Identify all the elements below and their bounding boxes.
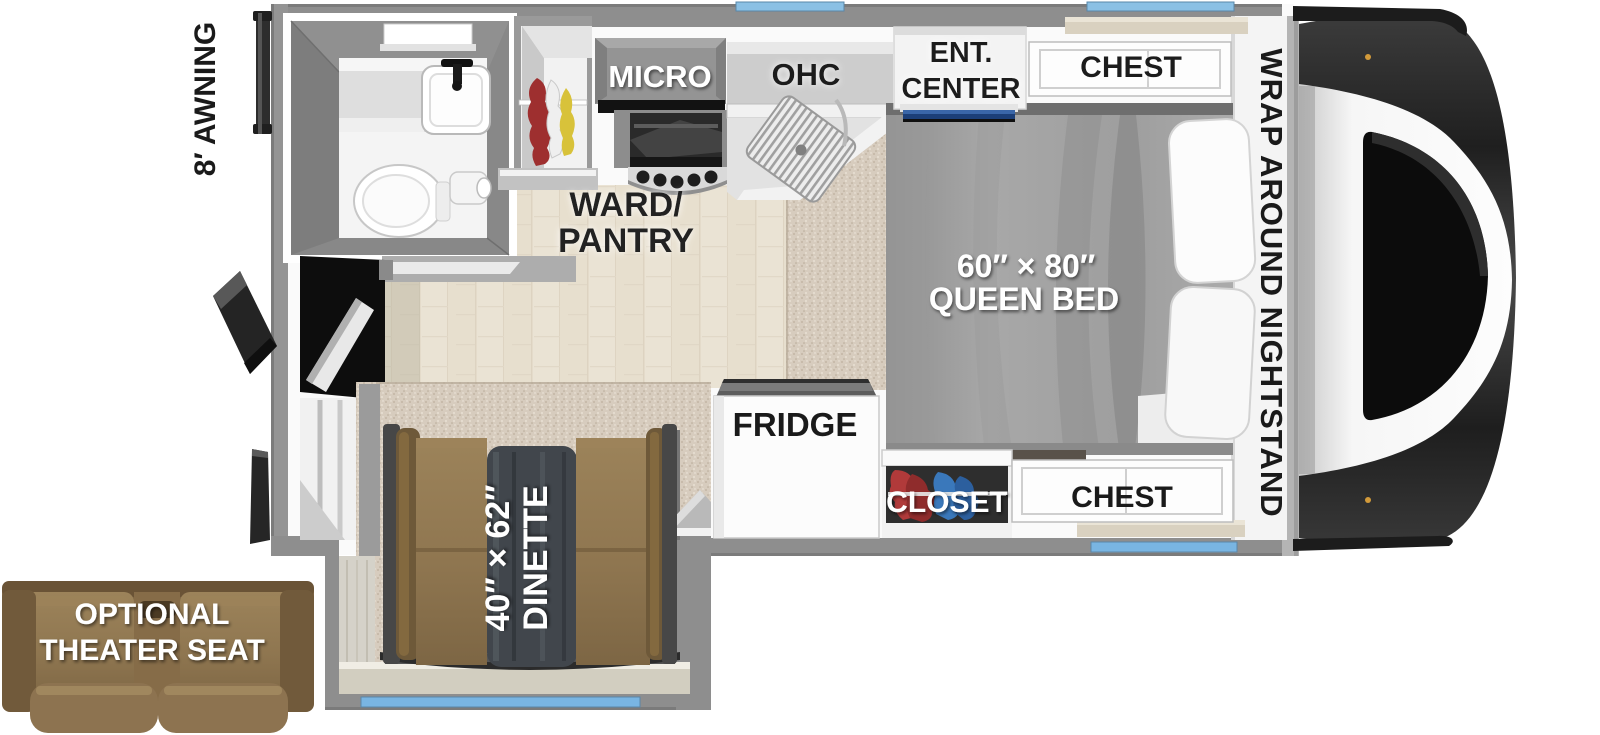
svg-text:QUEEN BED: QUEEN BED <box>929 281 1119 317</box>
svg-text:WRAP AROUND NIGHTSTAND: WRAP AROUND NIGHTSTAND <box>1254 48 1289 517</box>
svg-text:40″ × 62″: 40″ × 62″ <box>479 485 517 632</box>
svg-text:CHEST: CHEST <box>1080 51 1182 84</box>
svg-text:THEATER SEAT: THEATER SEAT <box>39 634 265 667</box>
svg-text:60″ × 80″: 60″ × 80″ <box>957 248 1095 284</box>
svg-text:CENTER: CENTER <box>901 73 1020 105</box>
svg-text:MICRO: MICRO <box>608 59 711 94</box>
svg-text:CLOSET: CLOSET <box>886 486 1008 519</box>
svg-text:WARD/: WARD/ <box>569 186 683 224</box>
svg-text:OHC: OHC <box>772 57 841 92</box>
svg-text:DINETTE: DINETTE <box>517 485 555 630</box>
svg-text:OPTIONAL: OPTIONAL <box>75 598 230 631</box>
svg-text:CHEST: CHEST <box>1071 481 1173 514</box>
svg-text:PANTRY: PANTRY <box>558 222 694 260</box>
svg-text:8′ AWNING: 8′ AWNING <box>189 22 222 176</box>
svg-text:FRIDGE: FRIDGE <box>733 406 858 443</box>
svg-text:ENT.: ENT. <box>930 37 993 69</box>
